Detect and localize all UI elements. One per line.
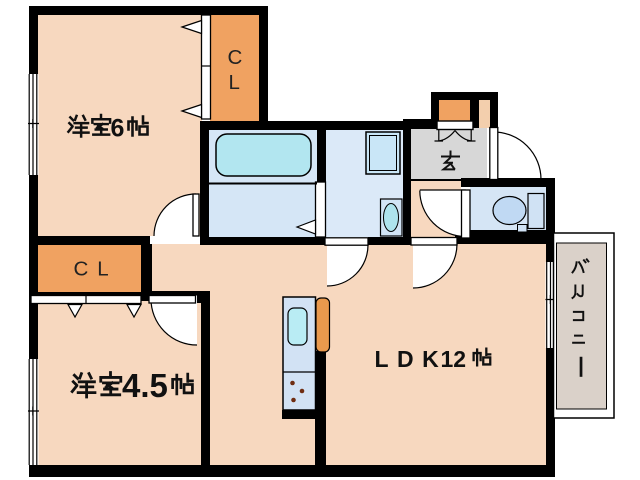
svg-text:CL: CL bbox=[74, 258, 118, 281]
svg-text:LDK: LDK bbox=[375, 346, 448, 372]
svg-text:6: 6 bbox=[111, 115, 125, 143]
svg-text:C: C bbox=[228, 46, 243, 69]
svg-text:L: L bbox=[229, 71, 240, 94]
svg-text:12: 12 bbox=[441, 346, 467, 372]
svg-text:4.5: 4.5 bbox=[122, 367, 168, 404]
